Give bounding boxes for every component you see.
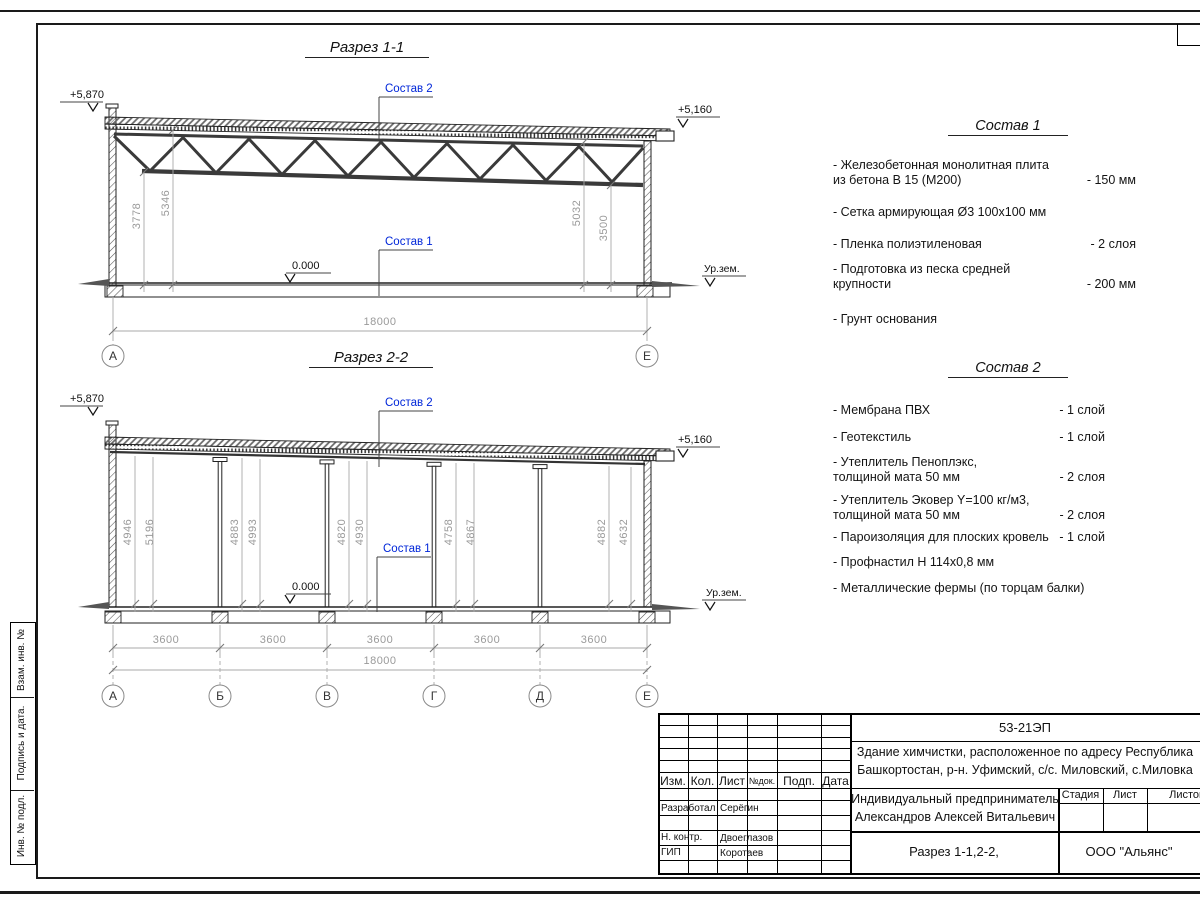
- s1-ground-label: Ур.зем.: [704, 263, 740, 275]
- sostav2-item-text: - Геотекстиль: [833, 430, 911, 445]
- sostav1-item-text: - Железобетонная монолитная плита из бет…: [833, 158, 1049, 188]
- s2-grid-label-d: Д: [529, 685, 551, 707]
- s2-bay4-dim-a: 4758: [443, 497, 455, 567]
- s1-ground-right: [652, 281, 700, 287]
- s2-span-dim-1: 3600: [136, 634, 196, 646]
- s2-grid-label-g: Г: [423, 685, 445, 707]
- s1-dim-5032: 5032: [571, 178, 583, 248]
- s2-bay1-dim-b: 5196: [144, 497, 156, 567]
- s2-roof-end-beam: [656, 451, 674, 461]
- s1-floor-slab: [105, 285, 670, 297]
- sostav1-item-value: - 200 мм: [1087, 277, 1136, 292]
- s1-truss: [114, 134, 643, 185]
- s2-bay5-dim-b: 4632: [618, 497, 630, 567]
- s1-grid-label-e: Е: [636, 345, 658, 367]
- s2-bay4-dim-b: 4867: [465, 497, 477, 567]
- sostav2-item: - Мембрана ПВХ - 1 слой: [833, 403, 1105, 418]
- s2-sostav2-label: Состав 2: [385, 397, 433, 409]
- sostav2-item-text: - Мембрана ПВХ: [833, 403, 930, 418]
- tb-client-line1: Индивидуальный предприниматель: [850, 792, 1060, 806]
- s2-ground-left: [78, 602, 109, 609]
- s2-span-dim-4: 3600: [457, 634, 517, 646]
- tb-name-dvoeglazov: Двоеглазов: [720, 833, 773, 844]
- sostav1-item-text: - Сетка армирующая Ø3 100х100 мм: [833, 205, 1046, 220]
- s2-leaders: [60, 406, 746, 612]
- section2-title: Разрез 2-2: [309, 349, 433, 368]
- sostav2-item-text: - Пароизоляция для плоских кровель: [833, 530, 1049, 545]
- tb-sheets-header: Листов: [1147, 789, 1200, 801]
- s2-grid-bubbles: [102, 685, 658, 707]
- title-block: Изм. Кол. Лист №док. Подп. Дата Разработ…: [658, 713, 1200, 877]
- s1-dim-3778: 3778: [131, 181, 143, 251]
- s2-bay2-dim-b: 4993: [247, 497, 259, 567]
- section1-title: Разрез 1-1: [305, 39, 429, 58]
- s2-columns: [213, 458, 547, 608]
- s2-bay-dims: [135, 456, 631, 612]
- s2-elev-right: +5,160: [678, 434, 728, 446]
- tb-col-list: Лист: [717, 774, 747, 788]
- s2-bay1-dim-a: 4946: [122, 497, 134, 567]
- s1-roof-end-beam: [656, 131, 674, 141]
- tb-doc-code: 53-21ЭП: [850, 720, 1200, 735]
- sostav1-item-value: - 150 мм: [1087, 173, 1136, 188]
- sostav2-item-value: - 1 слой: [1059, 403, 1105, 418]
- sostav2-item: - Утеплитель Пеноплэкс, толщиной мата 50…: [833, 455, 1105, 485]
- tb-role-gip: ГИП: [661, 847, 681, 858]
- tb-col-data: Дата: [821, 774, 850, 788]
- s2-bay5-dim-a: 4882: [596, 497, 608, 567]
- sostav2-item: - Геотекстиль - 1 слой: [833, 430, 1105, 445]
- s1-dim-3500: 3500: [598, 193, 610, 263]
- sostav2-item: - Металлические фермы (по торцам балки): [833, 581, 1105, 596]
- sostav1-item: - Железобетонная монолитная плита из бет…: [833, 158, 1136, 188]
- s2-grid-label-e: Е: [636, 685, 658, 707]
- tb-col-kol: Кол.: [688, 774, 717, 788]
- tb-sheet-name: Разрез 1-1,2-2,: [850, 844, 1058, 859]
- s1-footing-right: [637, 286, 653, 297]
- s2-ground-right: [652, 604, 700, 610]
- sostav2-item-value: - 1 слой: [1059, 430, 1105, 445]
- tb-sheet-header: Лист: [1103, 789, 1147, 801]
- s1-elev-left: +5,870: [54, 89, 104, 101]
- sostav2-item: - Утеплитель Эковер Y=100 кг/м3, толщино…: [833, 493, 1105, 523]
- sostav2-item-text: - Металлические фермы (по торцам балки): [833, 581, 1084, 596]
- sostav2-item: - Профнастил Н 114х0,8 мм: [833, 555, 1105, 570]
- drawing-sheet: Взам. инв. № Подпись и дата. Инв. № подл…: [0, 0, 1200, 900]
- tb-object-line2: Башкортостан, р-н. Уфимский, с/с. Миловс…: [850, 763, 1200, 777]
- s1-grid-label-a: А: [102, 345, 124, 367]
- tb-col-podp: Подп.: [777, 774, 821, 788]
- sostav1-item: - Пленка полиэтиленовая - 2 слоя: [833, 237, 1136, 252]
- s2-grid-label-v: В: [316, 685, 338, 707]
- sostav1-item-text: - Подготовка из песка средней крупности: [833, 262, 1010, 292]
- s1-ground-left: [78, 279, 109, 286]
- tb-object-line1: Здание химчистки, расположенное по адрес…: [850, 745, 1200, 759]
- tb-col-ndok: №док.: [747, 776, 777, 786]
- tb-role-razrabotal: Разработал: [661, 803, 715, 814]
- s2-floor-slab: [105, 611, 670, 623]
- s1-sostav1-label: Состав 1: [385, 236, 433, 248]
- s2-elev-left: +5,870: [54, 393, 104, 405]
- tb-stage-header: Стадия: [1058, 789, 1103, 801]
- sostav1-title: Состав 1: [948, 118, 1068, 136]
- s2-sostav1-label: Состав 1: [383, 543, 431, 555]
- s2-span-dim-3: 3600: [350, 634, 410, 646]
- s2-bay2-dim-a: 4883: [229, 497, 241, 567]
- s2-grid-label-a: А: [102, 685, 124, 707]
- s1-vert-dims: [144, 130, 611, 292]
- s1-footing-left: [107, 286, 123, 297]
- tb-company: ООО "Альянс": [1058, 844, 1200, 859]
- s1-right-wall: [644, 141, 651, 285]
- tb-role-nkontr: Н. контр.: [661, 832, 702, 843]
- s1-dim-total: 18000: [340, 316, 420, 328]
- sostav1-item: - Сетка армирующая Ø3 100х100 мм: [833, 205, 1136, 220]
- s2-span-dim-2: 3600: [243, 634, 303, 646]
- tb-client-line2: Александров Алексей Витальевич: [850, 810, 1060, 824]
- sostav2-item-text: - Профнастил Н 114х0,8 мм: [833, 555, 994, 570]
- s2-bay3-dim-b: 4930: [354, 497, 366, 567]
- tb-col-izm: Изм.: [658, 774, 688, 788]
- sostav2-item-text: - Утеплитель Эковер Y=100 кг/м3, толщино…: [833, 493, 1029, 523]
- sostav2-item-value: - 2 слоя: [1060, 470, 1105, 485]
- sostav1-item-value: - 2 слоя: [1091, 237, 1136, 252]
- sostav2-item-text: - Утеплитель Пеноплэкс, толщиной мата 50…: [833, 455, 977, 485]
- sostav1-item-text: - Пленка полиэтиленовая: [833, 237, 982, 252]
- s2-grid-label-b: Б: [209, 685, 231, 707]
- sostav1-item: - Грунт основания: [833, 312, 1136, 327]
- s2-ground-label: Ур.зем.: [706, 587, 742, 599]
- sostav2-title: Состав 2: [948, 360, 1068, 378]
- sostav2-item-value: - 1 слой: [1059, 530, 1105, 545]
- s2-span-dim-5: 3600: [564, 634, 624, 646]
- s1-elev-right: +5,160: [678, 104, 728, 116]
- tb-name-korotaev: Коротаев: [720, 848, 763, 859]
- sostav1-item-text: - Грунт основания: [833, 312, 937, 327]
- s1-dim-5346: 5346: [160, 168, 172, 238]
- s1-zero-mark: 0.000: [292, 260, 320, 272]
- sostav2-item-value: - 2 слоя: [1060, 508, 1105, 523]
- s2-dim-total: 18000: [340, 655, 420, 667]
- tb-name-seregin: Серёгин: [720, 803, 759, 814]
- s2-right-wall: [644, 461, 651, 607]
- sostav2-item: - Пароизоляция для плоских кровель - 1 с…: [833, 530, 1105, 545]
- sostav1-item: - Подготовка из песка средней крупности …: [833, 262, 1136, 292]
- s2-bay3-dim-a: 4820: [336, 497, 348, 567]
- s2-zero-mark: 0.000: [292, 581, 320, 593]
- s1-sostav2-label: Состав 2: [385, 83, 433, 95]
